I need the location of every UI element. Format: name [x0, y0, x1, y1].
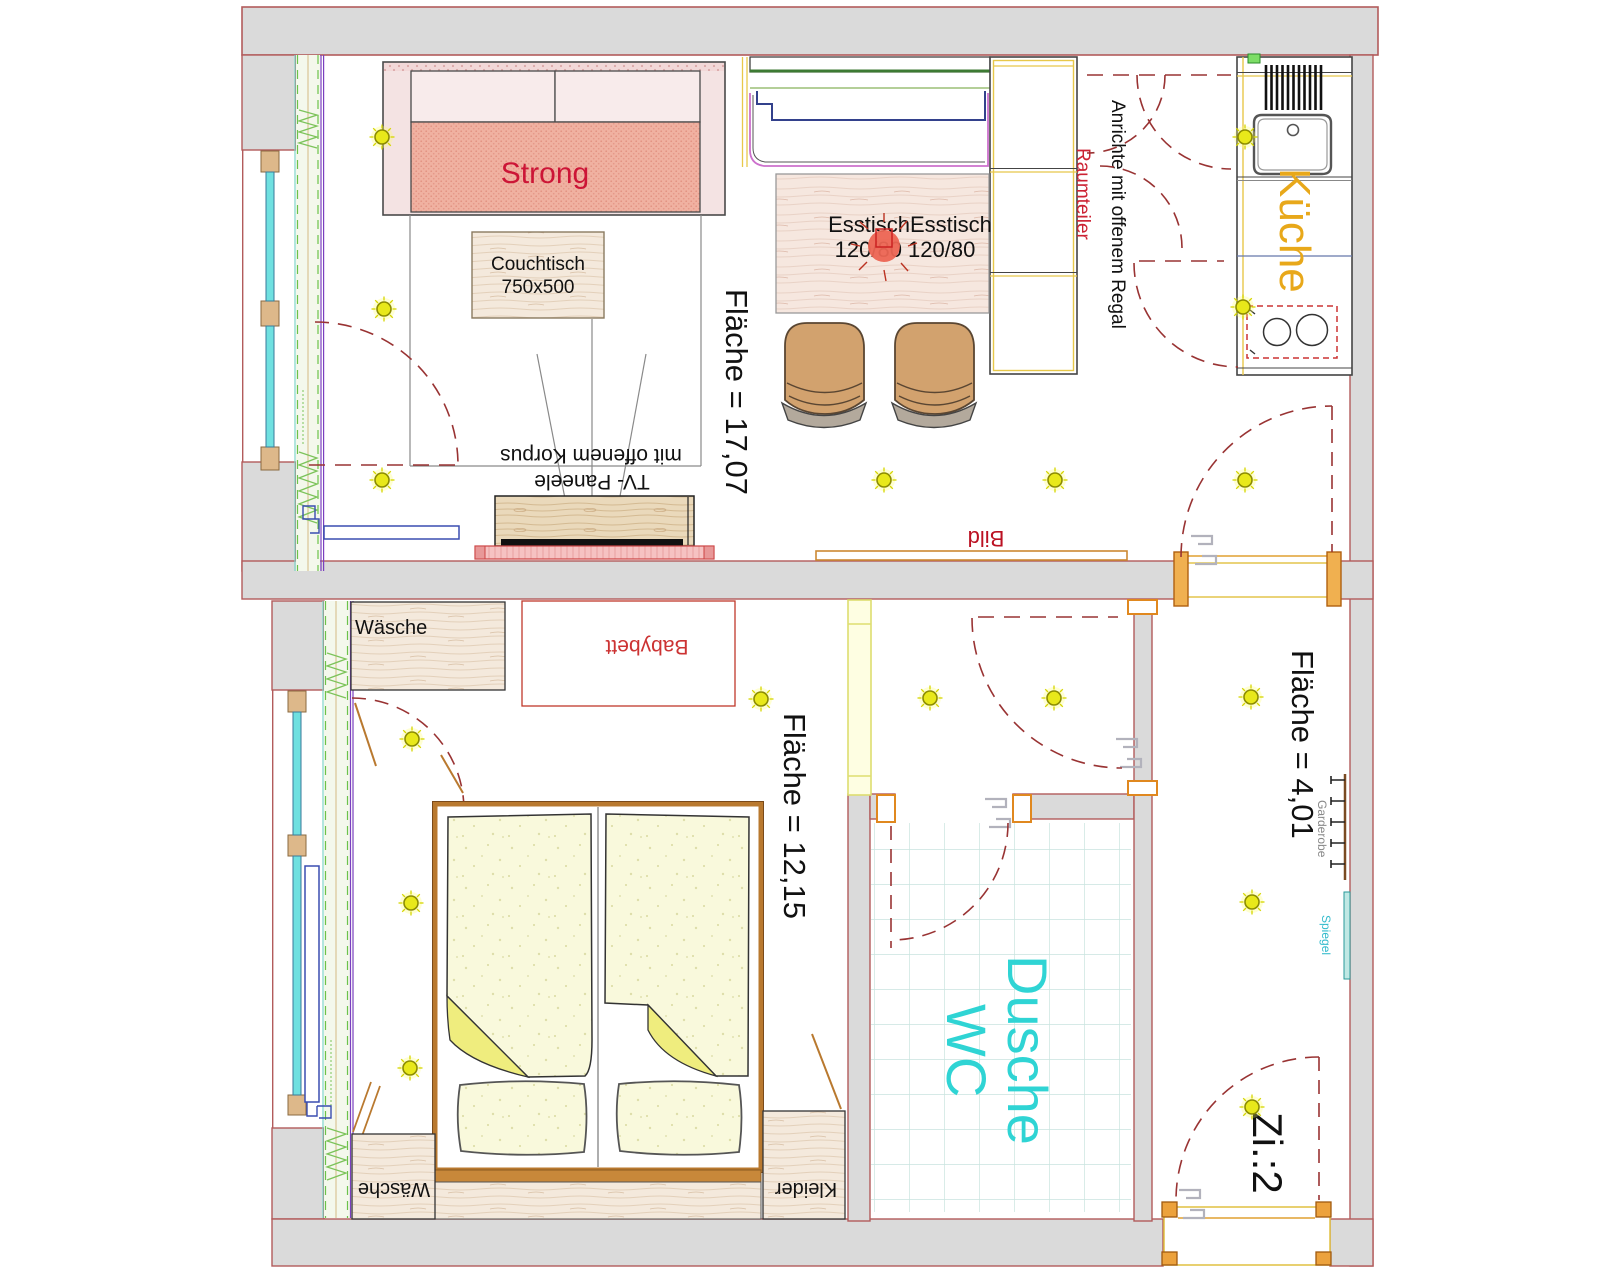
svg-text:mit offenem Korpus: mit offenem Korpus	[500, 444, 682, 467]
svg-text:120/80 120/80: 120/80 120/80	[835, 237, 976, 262]
svg-text:Fläche = 4,01: Fläche = 4,01	[1285, 650, 1320, 839]
svg-text:Dusche: Dusche	[996, 955, 1059, 1145]
svg-text:EsstischEsstisch: EsstischEsstisch	[828, 212, 992, 237]
svg-text:Bild: Bild	[968, 526, 1005, 551]
svg-text:TV- Paneele: TV- Paneele	[534, 470, 650, 493]
svg-text:Kleider: Kleider	[775, 1178, 838, 1200]
svg-text:750x500: 750x500	[502, 277, 575, 298]
svg-text:Fläche = 12,15: Fläche = 12,15	[777, 713, 812, 919]
svg-text:Spiegel: Spiegel	[1319, 915, 1333, 955]
svg-text:Fläche = 17,07: Fläche = 17,07	[719, 289, 754, 495]
svg-text:Anrichte mit offenem Regal: Anrichte mit offenem Regal	[1107, 100, 1128, 329]
svg-text:Zi.:2: Zi.:2	[1244, 1112, 1291, 1194]
svg-text:Wäsche: Wäsche	[355, 617, 427, 639]
svg-text:Garderobe: Garderobe	[1315, 800, 1329, 858]
svg-text:Wäsche: Wäsche	[358, 1178, 430, 1200]
svg-text:Raumteiler: Raumteiler	[1072, 148, 1093, 241]
svg-text:WC: WC	[935, 1004, 998, 1097]
svg-text:Strong: Strong	[501, 157, 589, 190]
svg-text:Babybett: Babybett	[605, 635, 688, 658]
svg-text:Küche: Küche	[1270, 168, 1319, 293]
svg-text:Couchtisch: Couchtisch	[491, 254, 585, 275]
